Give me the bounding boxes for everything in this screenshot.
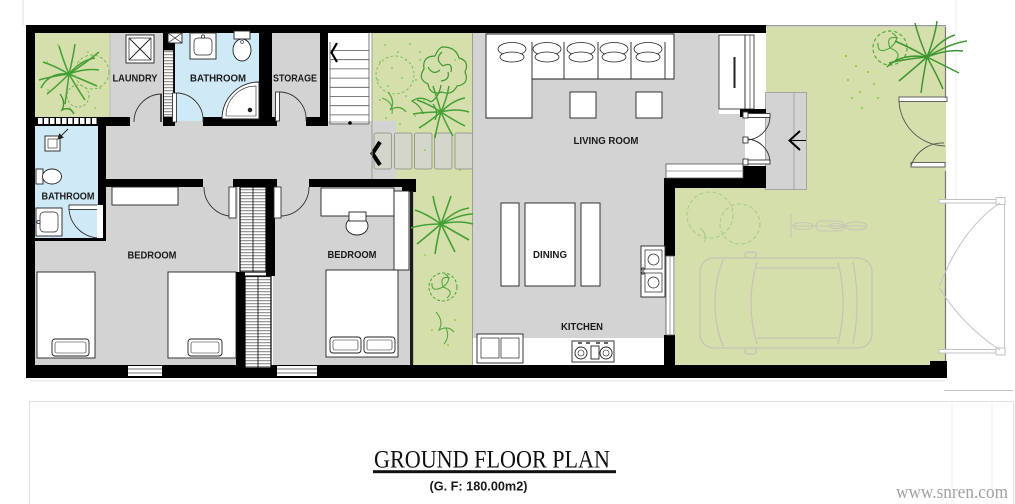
svg-text:BATHROOM: BATHROOM [42,192,95,203]
svg-text:DINING: DINING [533,250,567,261]
svg-text:BEDROOM: BEDROOM [128,251,177,262]
svg-text:BEDROOM: BEDROOM [328,250,377,261]
svg-text:BATHROOM: BATHROOM [190,74,246,85]
svg-text:(G. F: 180.00m2): (G. F: 180.00m2) [430,479,528,494]
svg-text:LAUNDRY: LAUNDRY [113,74,158,85]
svg-text:LIVING ROOM: LIVING ROOM [574,136,639,147]
svg-text:STORAGE: STORAGE [273,74,317,85]
svg-text:KITCHEN: KITCHEN [561,322,603,333]
svg-text:GROUND FLOOR PLAN: GROUND FLOOR PLAN [374,447,610,474]
svg-text:www.snren.com: www.snren.com [896,482,1008,503]
